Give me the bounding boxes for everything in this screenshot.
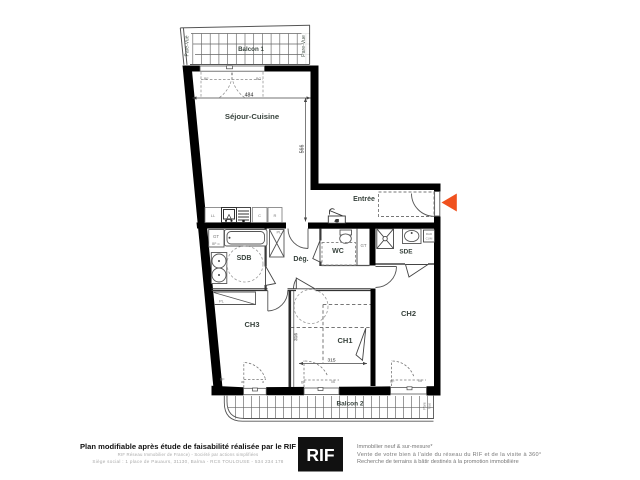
svg-text:315: 315 xyxy=(327,358,335,364)
svg-text:WC: WC xyxy=(332,248,344,255)
svg-text:GT: GT xyxy=(213,234,219,239)
svg-text:PL: PL xyxy=(219,299,225,304)
svg-text:PL: PL xyxy=(277,230,283,235)
svg-text:Plan modifiable après étude de: Plan modifiable après étude de faisabili… xyxy=(80,442,296,451)
svg-text:SDB: SDB xyxy=(237,255,252,262)
svg-text:45: 45 xyxy=(335,219,339,223)
svg-text:RIF Réseau Immobilier de Fran: RIF Réseau Immobilier de France) - Socié… xyxy=(118,452,259,457)
svg-text:Immobilier neuf & sur-mesure*: Immobilier neuf & sur-mesure* xyxy=(357,444,433,450)
svg-text:a: a xyxy=(262,380,264,384)
svg-text:SDE: SDE xyxy=(399,249,413,256)
svg-text:RAD: RAD xyxy=(426,232,433,236)
svg-text:BP ⊙: BP ⊙ xyxy=(212,242,220,246)
svg-text:06: 06 xyxy=(331,380,335,384)
svg-text:Vue: Vue xyxy=(428,403,432,409)
svg-text:a: a xyxy=(241,380,243,384)
svg-text:Recherche de terrains à bâtir: Recherche de terrains à bâtir destinés à… xyxy=(357,459,519,465)
svg-text:Dég.: Dég. xyxy=(293,256,308,263)
svg-text:R: R xyxy=(274,213,277,218)
svg-text:Balcon 2: Balcon 2 xyxy=(336,401,363,408)
svg-text:Pare-Vue: Pare-Vue xyxy=(185,35,191,56)
svg-text:GT: GT xyxy=(360,243,366,248)
svg-text:06: 06 xyxy=(418,379,422,383)
svg-text:BF: BF xyxy=(390,380,395,384)
svg-text:CUM: CUM xyxy=(426,237,433,241)
svg-text:CH3: CH3 xyxy=(244,320,259,329)
svg-text:Pare: Pare xyxy=(423,402,427,410)
svg-text:CH1: CH1 xyxy=(337,336,352,345)
svg-text:484: 484 xyxy=(245,93,254,99)
svg-text:316: 316 xyxy=(293,333,299,341)
svg-text:BF: BF xyxy=(204,77,209,81)
svg-text:BF: BF xyxy=(220,378,225,382)
svg-text:Entrée: Entrée xyxy=(353,196,375,203)
svg-text:RIF: RIF xyxy=(306,445,335,465)
svg-text:Siège social : 1 place de Paua: Siège social : 1 place de Pauaurs, 31130… xyxy=(92,459,283,464)
svg-text:C: C xyxy=(258,213,261,218)
svg-text:Vente de votre bien à l'aide d: Vente de votre bien à l'aide du réseau d… xyxy=(357,452,541,458)
svg-text:Pare-Vue: Pare-Vue xyxy=(301,35,307,57)
svg-text:BG: BG xyxy=(256,77,261,81)
svg-text:CH2: CH2 xyxy=(401,309,416,318)
svg-text:566: 566 xyxy=(300,145,306,154)
svg-text:Séjour-Cuisine: Séjour-Cuisine xyxy=(225,112,280,121)
svg-text:LL: LL xyxy=(211,213,216,218)
svg-text:BF: BF xyxy=(301,381,306,385)
svg-text:Balcon 1: Balcon 1 xyxy=(238,46,264,53)
